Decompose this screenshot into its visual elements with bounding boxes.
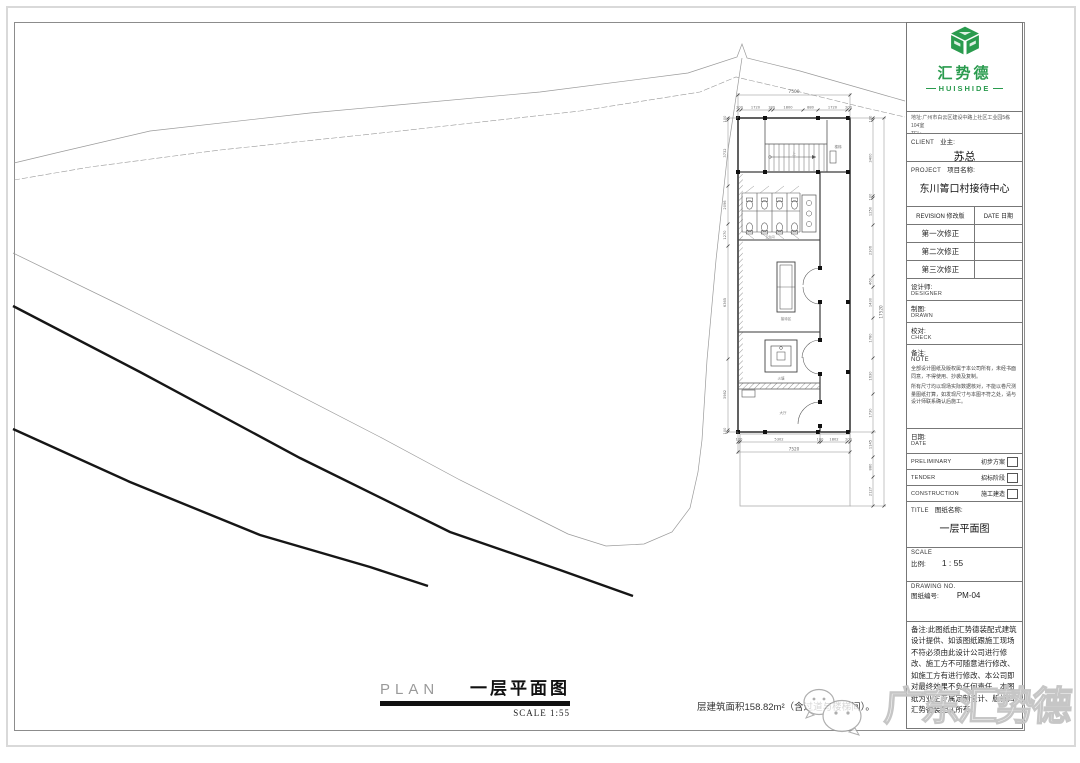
- phase-preliminary: PRELIMINARY 初步方案: [907, 454, 1022, 470]
- svg-text:1800: 1800: [783, 106, 793, 110]
- project-name: 东川箐口村接待中心: [911, 180, 1018, 195]
- drawing-number-value: PM-04: [957, 591, 981, 600]
- label-hall: 大厅: [780, 410, 788, 415]
- label-wc: 卫生间: [765, 234, 774, 239]
- svg-text:200: 200: [845, 437, 853, 441]
- checkbox: [1007, 489, 1018, 499]
- designer-field: 设计师: DESIGNER: [907, 279, 1022, 301]
- svg-text:3982: 3982: [723, 390, 727, 399]
- title-block: 汇势德 HUISHIDE 地址:广州市白云区建设中路上社区工业园5栋104室 T…: [906, 22, 1023, 729]
- plan-scale-note: SCALE 1:55: [380, 708, 570, 718]
- svg-text:100: 100: [723, 115, 727, 123]
- svg-text:200: 200: [736, 106, 744, 110]
- sheet-title-section: TITLE 图纸名称: 一层平面图: [907, 502, 1022, 548]
- svg-text:5302: 5302: [774, 437, 783, 441]
- svg-text:6365: 6365: [723, 298, 727, 307]
- svg-text:1270: 1270: [723, 230, 727, 240]
- svg-text:100: 100: [723, 427, 727, 435]
- svg-text:1145: 1145: [868, 440, 872, 449]
- huishide-cube-logo-icon: [948, 25, 982, 56]
- revision-row: 第三次修正: [907, 261, 1022, 278]
- brand-name-en: HUISHIDE: [911, 84, 1018, 93]
- checkbox: [1007, 473, 1018, 483]
- svg-text:880: 880: [868, 463, 872, 471]
- svg-text:2127: 2127: [868, 487, 872, 496]
- dim-overall-right: 17520: [879, 305, 884, 319]
- svg-text:2306: 2306: [868, 245, 872, 255]
- svg-text:100: 100: [817, 437, 825, 441]
- terrace-outline: [740, 434, 850, 506]
- logo-section: 汇势德 HUISHIDE: [907, 23, 1022, 112]
- phase-tender: TENDER 招标阶段: [907, 470, 1022, 486]
- caption-underline-bar: [380, 701, 570, 706]
- svg-text:460: 460: [868, 277, 872, 285]
- svg-text:1630: 1630: [868, 371, 872, 381]
- svg-text:3732: 3732: [723, 148, 727, 157]
- address-line: 地址:广州市白云区建设中路上社区工业园5栋104室: [911, 114, 1018, 130]
- dim-overall-bottom: 7520: [789, 446, 800, 451]
- checkbox: [1007, 457, 1018, 467]
- scale-section: SCALE 比例: 1 : 55: [907, 548, 1022, 582]
- svg-text:1720: 1720: [751, 106, 761, 110]
- label-meeting: 接待区: [781, 316, 792, 321]
- note-field: 备注: NOTE 全部设计图纸及版权属于本公司所有，未经书面同意，不得使用、抄袭…: [907, 345, 1022, 429]
- svg-text:1780: 1780: [868, 333, 872, 343]
- phase-construction: CONSTRUCTION 施工建造: [907, 486, 1022, 502]
- plan-title-cn: 一层平面图: [470, 674, 570, 699]
- brand-name-cn: 汇势德: [911, 62, 1018, 83]
- svg-text:1250: 1250: [868, 206, 872, 216]
- revision-row: 第二次修正: [907, 243, 1022, 261]
- svg-text:1802: 1802: [829, 437, 838, 441]
- watermark-text: 广东汇势德: [882, 676, 1080, 738]
- svg-text:100: 100: [736, 437, 744, 441]
- svg-text:1720: 1720: [828, 106, 838, 110]
- plan-caption: PLAN 一层平面图 SCALE 1:55: [380, 674, 570, 718]
- sheet-title-value: 一层平面图: [911, 520, 1018, 535]
- company-address: 地址:广州市白云区建设中路上社区工业园5栋104室 TEL:: [907, 112, 1022, 134]
- revision-table: REVISION 修改版 DATE 日期 第一次修正 第二次修正 第三次修正: [907, 207, 1022, 279]
- check-field: 校对: CHECK: [907, 323, 1022, 345]
- svg-text:1430: 1430: [868, 297, 872, 307]
- svg-text:880: 880: [807, 106, 815, 110]
- svg-text:1730: 1730: [868, 408, 872, 418]
- svg-text:100: 100: [868, 115, 872, 123]
- label-up: 上: [792, 150, 796, 156]
- svg-text:2096: 2096: [723, 200, 727, 210]
- svg-text:100: 100: [868, 193, 872, 201]
- road-line-lower: [13, 429, 428, 586]
- wechat-icon: [795, 683, 869, 741]
- date-field: 日期: DATE: [907, 429, 1022, 454]
- project-section: PROJECT 项目名称: 东川箐口村接待中心: [907, 162, 1022, 207]
- drawing-sheet: 7500 200 1720 180 1800 880 1720 200 100 …: [0, 0, 1080, 763]
- svg-text:3400: 3400: [868, 153, 872, 163]
- client-section: CLIENT 业主: 苏总: [907, 134, 1022, 162]
- drawn-field: 制图: DRAWN: [907, 301, 1022, 323]
- dim-overall-top: 7500: [788, 89, 799, 95]
- svg-text:180: 180: [768, 106, 776, 110]
- label-stair: 楼梯: [835, 144, 843, 149]
- plan-title-en: PLAN: [380, 681, 439, 698]
- svg-text:200: 200: [845, 106, 853, 110]
- label-firepit: 火塘: [778, 376, 786, 381]
- revision-row: 第一次修正: [907, 225, 1022, 243]
- scale-value: 1 : 55: [942, 558, 963, 568]
- hatched-wall-bottom: [739, 383, 820, 389]
- drawing-number-section: DRAWING NO. 图纸编号: PM-04: [907, 582, 1022, 622]
